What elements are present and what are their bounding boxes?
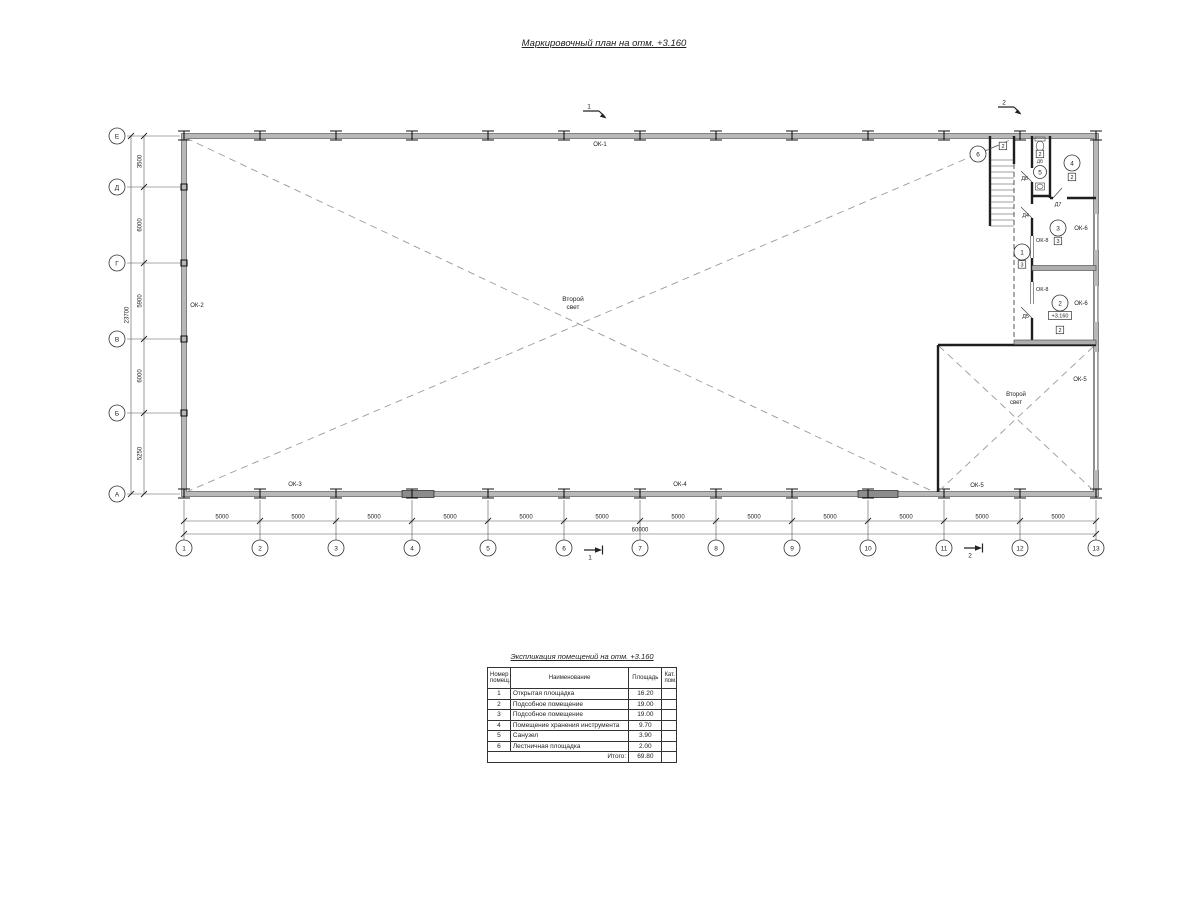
axis-label-col-6: 6 (562, 545, 566, 552)
room-6-leader-line (985, 145, 999, 151)
room-cat-cell (662, 699, 677, 710)
room-number-6: 6 (976, 151, 980, 158)
axis-label-col-9: 9 (790, 545, 794, 552)
room-number-1: 1 (1020, 249, 1024, 256)
room-cat-cell (662, 720, 677, 731)
axis-label-row-b: Б (115, 410, 119, 417)
axis-label-col-12: 12 (1016, 545, 1024, 552)
section-arrow-2-bottom (975, 545, 982, 551)
axis-label-row-v: В (115, 336, 119, 343)
gate-bottom-left (402, 491, 434, 498)
second-light-diagonals-main (186, 138, 1010, 492)
room-tag-4: 2 (1070, 175, 1073, 181)
total-value-cell: 69.80 (629, 752, 662, 763)
label-ok6-room2: ОК-6 (1074, 301, 1088, 307)
col-header-category: Кат. пом. (662, 668, 677, 689)
label-ok1: ОК-1 (593, 142, 607, 148)
interior-walls (938, 136, 1096, 492)
floor-plan-canvas: 5000 5000 5000 5000 5000 5000 5000 5000 … (0, 0, 1200, 900)
room-area-cell: 2.00 (629, 741, 662, 752)
room-num-cell: 1 (488, 689, 511, 700)
room-name-cell: Санузел (510, 731, 628, 742)
exterior-wall-inner-line (187, 139, 1094, 492)
label-door-d8: Д8 (1021, 176, 1028, 182)
room-name-cell: Лестничная площадка (510, 741, 628, 752)
room-tag-6: 2 (1001, 144, 1004, 150)
partition-corridor-bottom (1014, 340, 1096, 345)
dim-bay-4: 5000 (443, 515, 457, 521)
col-header-number: Номер помещ. (488, 668, 511, 689)
dim-bay-2: 5000 (291, 515, 305, 521)
second-light-right-line1: Второй (1006, 391, 1026, 398)
dim-total-width: 60000 (632, 528, 649, 534)
axis-label-row-d: Д (115, 184, 120, 191)
dim-row-2: 6000 (138, 218, 144, 232)
room-num-cell: 5 (488, 731, 511, 742)
dim-total-height: 23700 (125, 306, 131, 323)
label-door-dv: ДВ (1037, 159, 1043, 164)
toilet-bowl-icon (1036, 141, 1044, 151)
room-tag-2: 2 (1058, 328, 1061, 334)
dim-row-5: 5250 (138, 446, 144, 460)
section-arrow-1-top (600, 113, 607, 118)
room-area-cell: 9.70 (629, 720, 662, 731)
room-cat-cell (662, 741, 677, 752)
axis-label-col-5: 5 (486, 545, 490, 552)
room-num-cell: 2 (488, 699, 511, 710)
sink-basin-icon (1037, 184, 1043, 189)
label-ok3: ОК-3 (288, 482, 302, 488)
axis-label-col-8: 8 (714, 545, 718, 552)
room-tag-3: 3 (1056, 239, 1059, 245)
exterior-wall-band (184, 136, 1096, 494)
dim-bay-10: 5000 (899, 515, 913, 521)
extension-lines-left (127, 136, 180, 494)
total-label-cell: Итого: (488, 752, 629, 763)
dim-row-1: 3500 (138, 154, 144, 168)
section-label-1-bottom: 1 (588, 555, 592, 562)
section-arrow-2-top (1015, 109, 1022, 114)
explication-block: Экспликация помещений на отм. +3.160 Ном… (487, 652, 677, 763)
table-total-row: Итого: 69.80 (488, 752, 677, 763)
room-cat-cell (662, 710, 677, 721)
dim-bay-6: 5000 (595, 515, 609, 521)
label-door-d7: Д7 (1055, 202, 1062, 208)
dim-bay-1: 5000 (215, 515, 229, 521)
dim-bay-7: 5000 (671, 515, 685, 521)
label-door-d4: Д4 (1022, 213, 1029, 219)
room-area-cell: 16.20 (629, 689, 662, 700)
gate-bottom-right (858, 491, 898, 498)
dimension-lines-left (131, 136, 144, 494)
room-number-4: 4 (1070, 160, 1074, 167)
table-row: 3 Подсобное помещение 19.00 (488, 710, 677, 721)
exterior-wall-outer-line (182, 134, 1099, 497)
axis-label-col-3: 3 (334, 545, 338, 552)
label-ok8-room2: ОК-8 (1036, 287, 1048, 293)
axis-label-col-4: 4 (410, 545, 414, 552)
col-header-name: Наименование (510, 668, 628, 689)
label-ok8-room3: ОК-8 (1036, 238, 1048, 244)
col-header-area: Площадь (629, 668, 662, 689)
partition-room2-room3 (1032, 266, 1096, 271)
second-light-main-line1: Второй (562, 295, 584, 303)
table-row: 2 Подсобное помещение 19.00 (488, 699, 677, 710)
dim-bay-9: 5000 (823, 515, 837, 521)
label-ok5-right: ОК-5 (1073, 377, 1087, 383)
dim-bay-8: 5000 (747, 515, 761, 521)
dim-bay-3: 5000 (367, 515, 381, 521)
table-row: 5 Санузел 3.90 (488, 731, 677, 742)
room-area-cell: 19.00 (629, 699, 662, 710)
dim-bay-11: 5000 (975, 515, 989, 521)
axis-label-row-e: Е (115, 133, 120, 140)
section-arrow-1-bottom (595, 547, 602, 553)
axis-label-col-1: 1 (182, 545, 186, 552)
section-label-2-bottom: 2 (968, 553, 972, 560)
level-mark: +3.160 (1052, 314, 1069, 320)
axis-label-col-10: 10 (864, 545, 872, 552)
dim-bay-5: 5000 (519, 515, 533, 521)
room-num-cell: 4 (488, 720, 511, 731)
second-light-diagonals-right (939, 346, 1094, 491)
axis-label-col-2: 2 (258, 545, 262, 552)
label-ok4: ОК-4 (673, 482, 687, 488)
room-area-cell: 19.00 (629, 710, 662, 721)
room-num-cell: 3 (488, 710, 511, 721)
room-number-2: 2 (1058, 300, 1062, 307)
dim-row-3: 5900 (138, 294, 144, 308)
room-tag-5: 2 (1038, 152, 1041, 158)
axis-label-row-g: Г (115, 260, 119, 267)
label-ok2: ОК-2 (190, 303, 204, 309)
room-num-cell: 6 (488, 741, 511, 752)
axis-label-row-a: А (115, 491, 120, 498)
second-light-right-line2: свет (1010, 400, 1022, 406)
table-header-row: Номер помещ. Наименование Площадь Кат. п… (488, 668, 677, 689)
room-name-cell: Помещение хранения инструмента (510, 720, 628, 731)
room-number-5: 5 (1038, 169, 1042, 176)
room-name-cell: Подсобное помещение (510, 699, 628, 710)
room-number-3: 3 (1056, 225, 1060, 232)
label-ok5-bottom: ОК-5 (970, 483, 984, 489)
axis-label-col-7: 7 (638, 545, 642, 552)
table-row: 1 Открытая площадка 16.20 (488, 689, 677, 700)
axis-label-col-13: 13 (1092, 545, 1100, 552)
explication-table: Номер помещ. Наименование Площадь Кат. п… (487, 667, 677, 763)
section-label-2-top: 2 (1002, 100, 1006, 107)
dim-bay-12: 5000 (1051, 515, 1065, 521)
room-cat-cell (662, 731, 677, 742)
room-tag-1: 3 (1020, 263, 1023, 269)
room-area-cell: 3.90 (629, 731, 662, 742)
label-ok6-room3: ОК-6 (1074, 226, 1088, 232)
section-label-1-top: 1 (587, 104, 591, 111)
label-door-d5: Д5 (1022, 314, 1029, 320)
drawing-title: Маркировочный план на отм. +3.160 (454, 38, 754, 49)
room-name-cell: Открытая площадка (510, 689, 628, 700)
second-light-main-line2: свет (566, 304, 579, 311)
drawing-sheet: Маркировочный план на отм. +3.160 (0, 0, 1200, 900)
table-row: 4 Помещение хранения инструмента 9.70 (488, 720, 677, 731)
dim-row-4: 6000 (138, 369, 144, 383)
room-name-cell: Подсобное помещение (510, 710, 628, 721)
explication-title: Экспликация помещений на отм. +3.160 (487, 652, 677, 661)
stair-treads (990, 160, 1014, 226)
total-cat-cell (662, 752, 677, 763)
axis-label-col-11: 11 (941, 545, 948, 552)
room-cat-cell (662, 689, 677, 700)
table-row: 6 Лестничная площадка 2.00 (488, 741, 677, 752)
